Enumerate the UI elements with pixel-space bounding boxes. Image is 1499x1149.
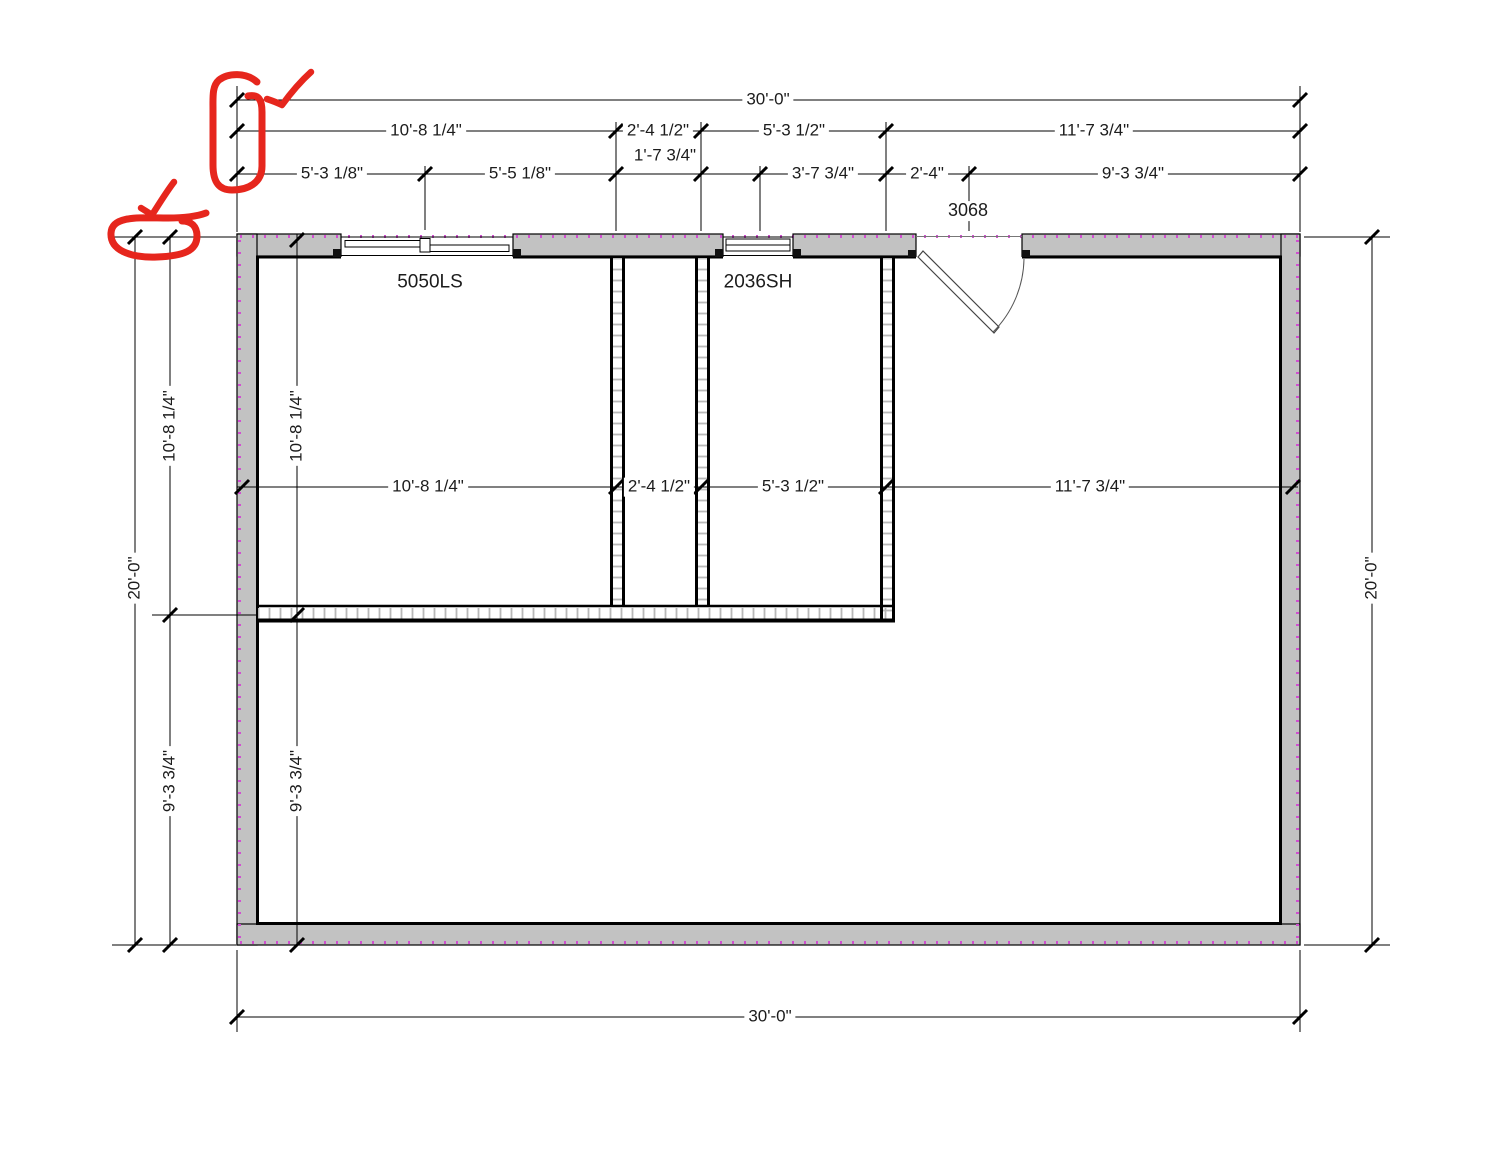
- exterior-wall-interior-faces: [256, 256, 1282, 925]
- interior-walls: [257, 257, 895, 621]
- window-5050ls: [333, 234, 521, 257]
- dim-top2-c: 5'-3 1/2": [759, 122, 829, 141]
- dim-overall-top: 30'-0": [742, 91, 793, 110]
- dim-left-inner-lower: 9'-3 3/4": [288, 746, 307, 816]
- dim-top3-b: 5'-5 1/8": [485, 165, 555, 184]
- dim-left-upper: 10'-8 1/4": [161, 386, 180, 466]
- dim-overall-bottom: 30'-0": [744, 1008, 795, 1027]
- dim-top3-c: 1'-7 3/4": [630, 147, 700, 166]
- dim-top3-d: 3'-7 3/4": [788, 165, 858, 184]
- window-2036sh: [715, 234, 801, 257]
- dim-top3-f: 9'-3 3/4": [1098, 165, 1168, 184]
- dim-right-overall: 20'-0": [1363, 552, 1382, 603]
- dim-left-lower: 9'-3 3/4": [161, 746, 180, 816]
- door-size-tag: 3068: [945, 201, 991, 221]
- dim-mid-b: 2'-4 1/2": [624, 478, 694, 497]
- exterior-hatch: [240, 237, 1299, 943]
- floor-plan-linework: [0, 0, 1499, 1149]
- dim-top2-a: 10'-8 1/4": [386, 122, 466, 141]
- window-tag-2036sh: 2036SH: [721, 273, 796, 294]
- red-circle-annotation-left: [111, 213, 206, 257]
- floor-plan-canvas: 30'-0" 10'-8 1/4" 2'-4 1/2" 5'-3 1/2" 11…: [0, 0, 1499, 1149]
- door-3068: [908, 234, 1030, 333]
- exterior-walls: [237, 234, 1300, 945]
- window-tag-5050ls: 5050LS: [394, 273, 466, 294]
- dim-left-overall: 20'-0": [126, 552, 145, 603]
- dim-mid-c: 5'-3 1/2": [758, 478, 828, 497]
- dimension-lines: [112, 86, 1390, 1032]
- dim-mid-a: 10'-8 1/4": [388, 478, 468, 497]
- dim-top2-b: 2'-4 1/2": [623, 122, 693, 141]
- dimension-ticks: [128, 93, 1379, 1024]
- dim-top2-d: 11'-7 3/4": [1055, 122, 1133, 141]
- dim-left-inner-upper: 10'-8 1/4": [288, 386, 307, 466]
- dim-top3-e: 2'-4": [906, 165, 948, 184]
- door-swing-arc: [993, 259, 1024, 332]
- dim-mid-d: 11'-7 3/4": [1051, 478, 1129, 497]
- dim-top3-a: 5'-3 1/8": [297, 165, 367, 184]
- red-checkmark-left: [141, 182, 174, 215]
- door-leaf: [918, 251, 999, 333]
